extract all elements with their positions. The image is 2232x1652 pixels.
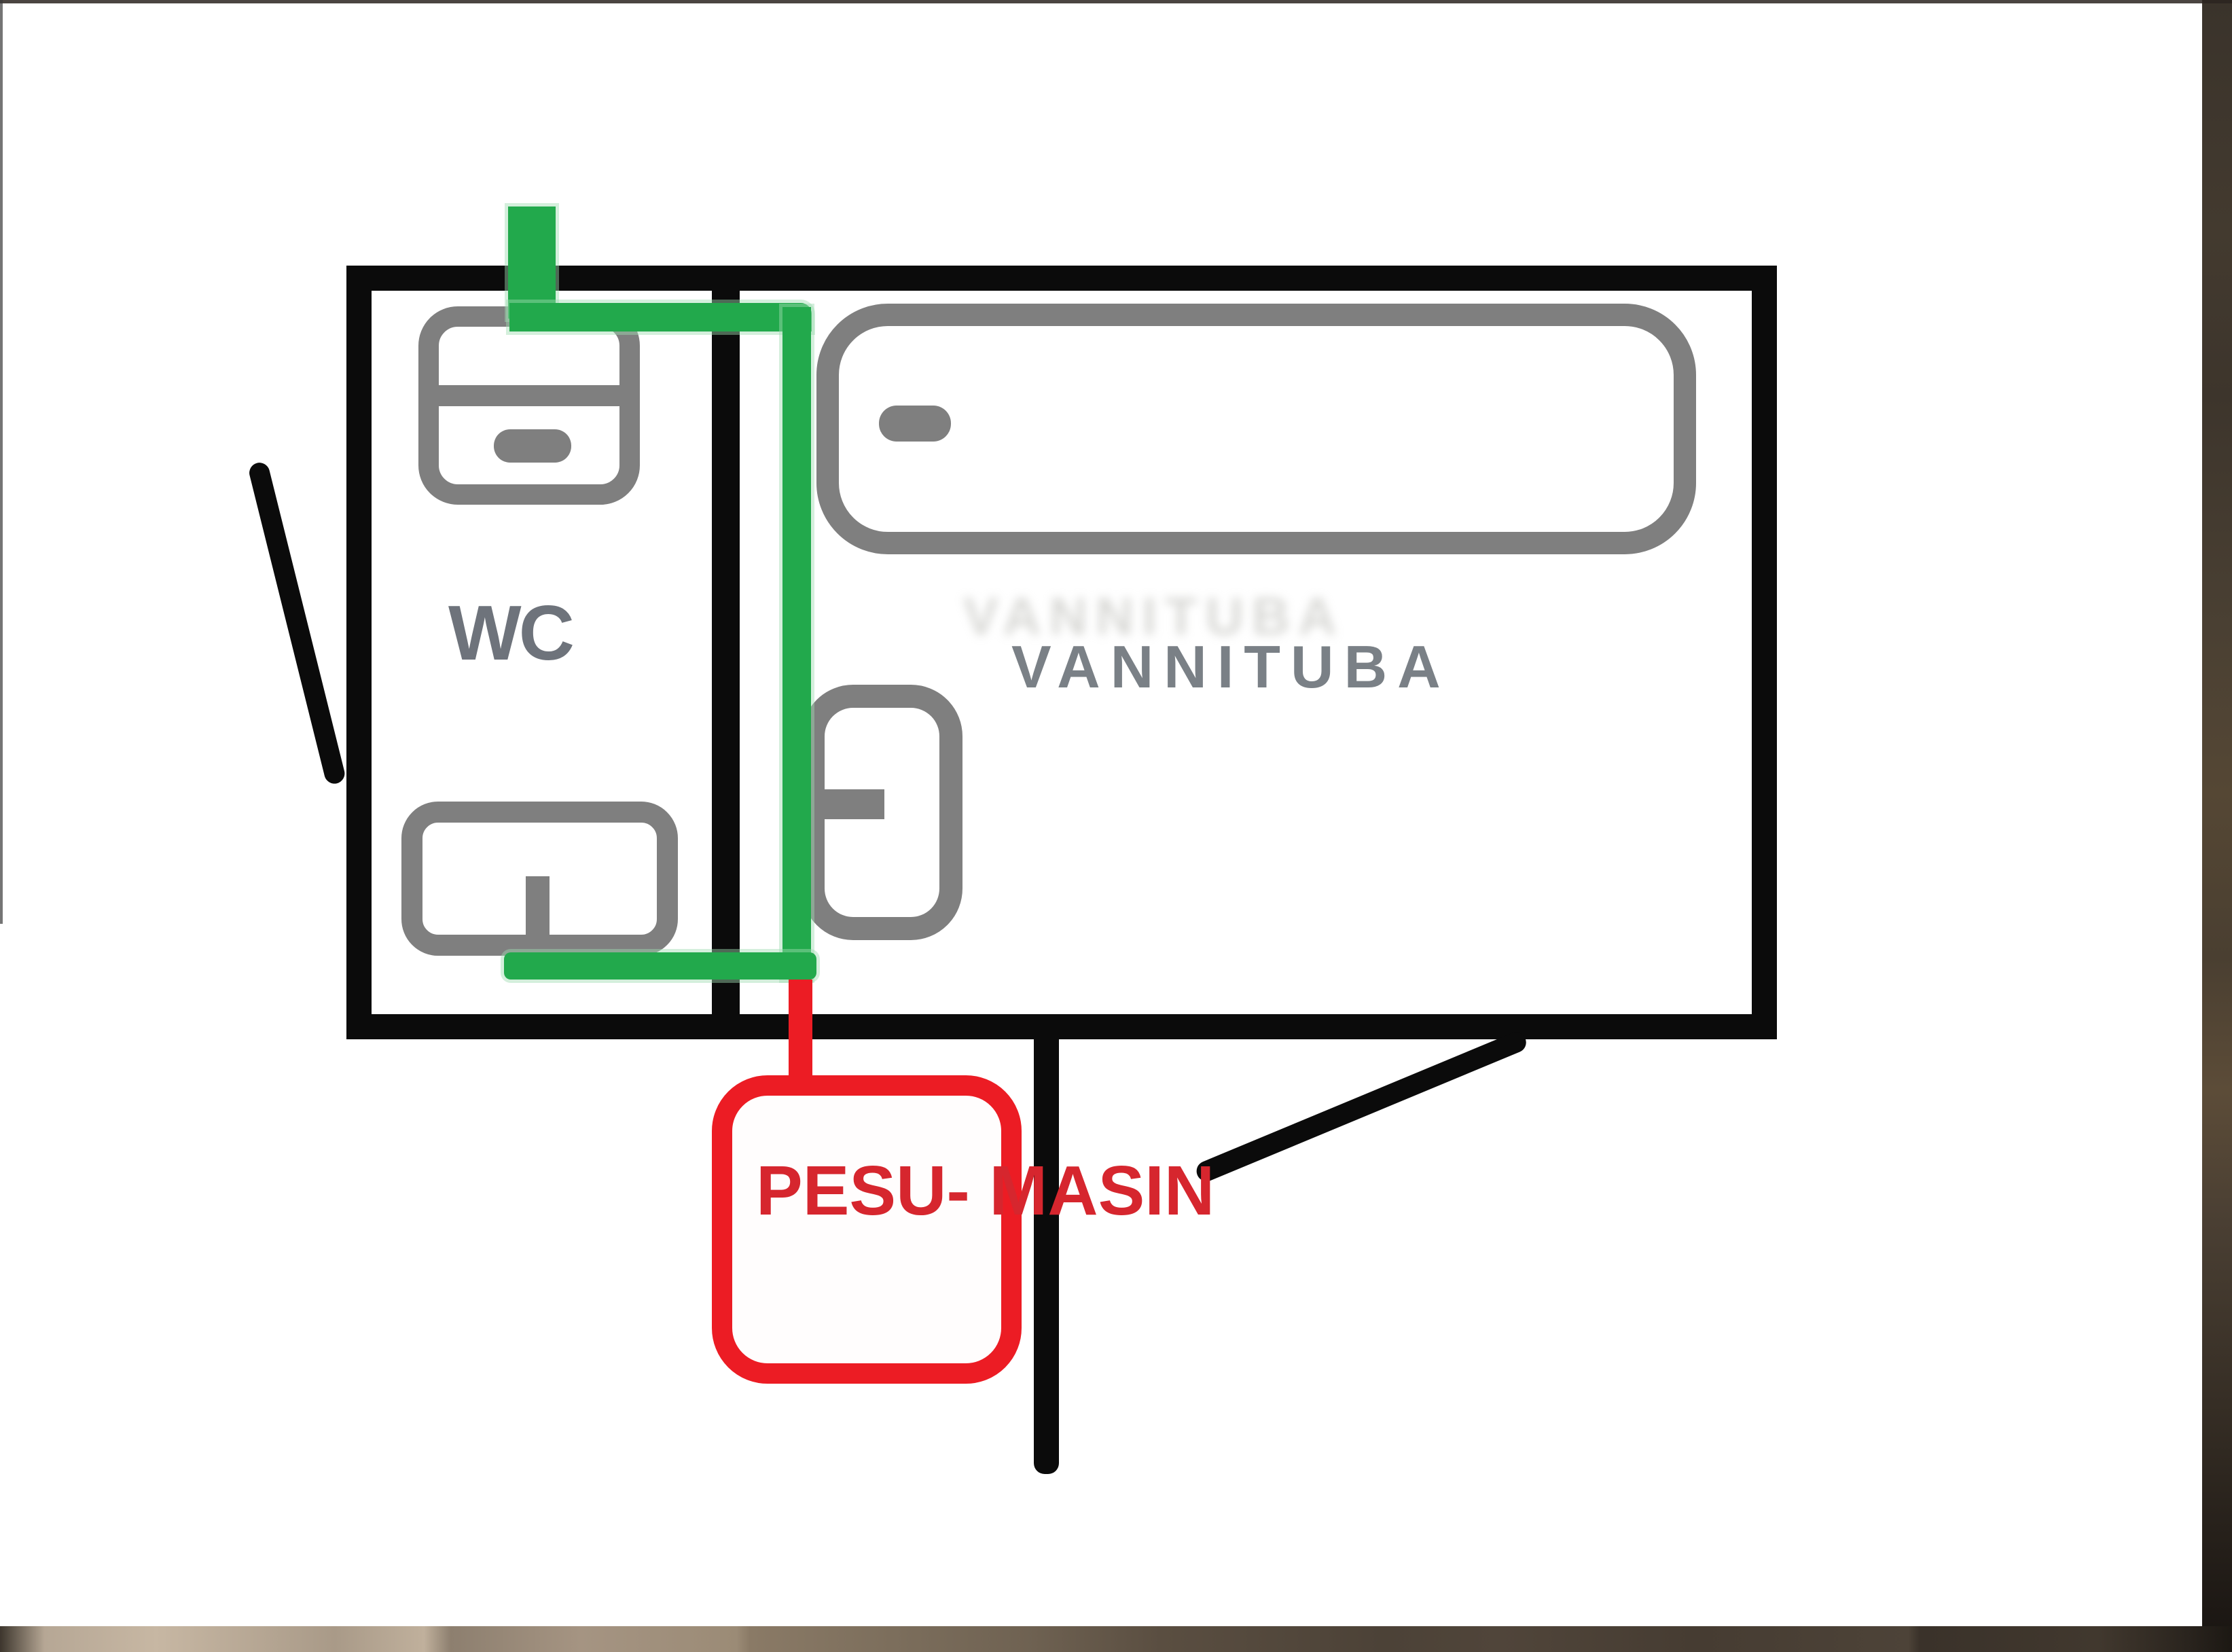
right-door-swing-line	[1193, 1029, 1529, 1185]
background-photo-right-strip	[2202, 0, 2232, 1652]
wc-divider-wall	[712, 285, 740, 1020]
sink-tap-mark	[526, 876, 550, 947]
green-route-inlet-stub	[508, 206, 556, 319]
paint-canvas: { "document": { "kind": "hand-drawn bath…	[0, 0, 2232, 1652]
canvas-top-edge-line	[0, 0, 2232, 3]
washing-machine-label: PESU- MASIN	[756, 1138, 1001, 1243]
left-door-swing-line	[247, 461, 347, 786]
wall-stub-below-room	[1034, 1015, 1059, 1474]
green-route-bottom-segment	[504, 952, 816, 980]
shower-mixer-handle	[812, 789, 884, 819]
wc-room-label: WC	[448, 589, 572, 678]
canvas-left-edge-line	[0, 0, 3, 924]
toilet-flush-button	[494, 429, 571, 463]
green-route-top-segment	[509, 303, 812, 331]
washing-machine-pointer-line	[789, 980, 812, 1080]
background-photo-bottom-strip	[0, 1626, 2232, 1652]
bathroom-room-label: VANNITUBA	[1011, 632, 1451, 702]
toilet-tank-line	[418, 385, 640, 406]
bathtub-drain-mark	[879, 406, 951, 442]
green-route-vertical-segment	[782, 307, 811, 980]
